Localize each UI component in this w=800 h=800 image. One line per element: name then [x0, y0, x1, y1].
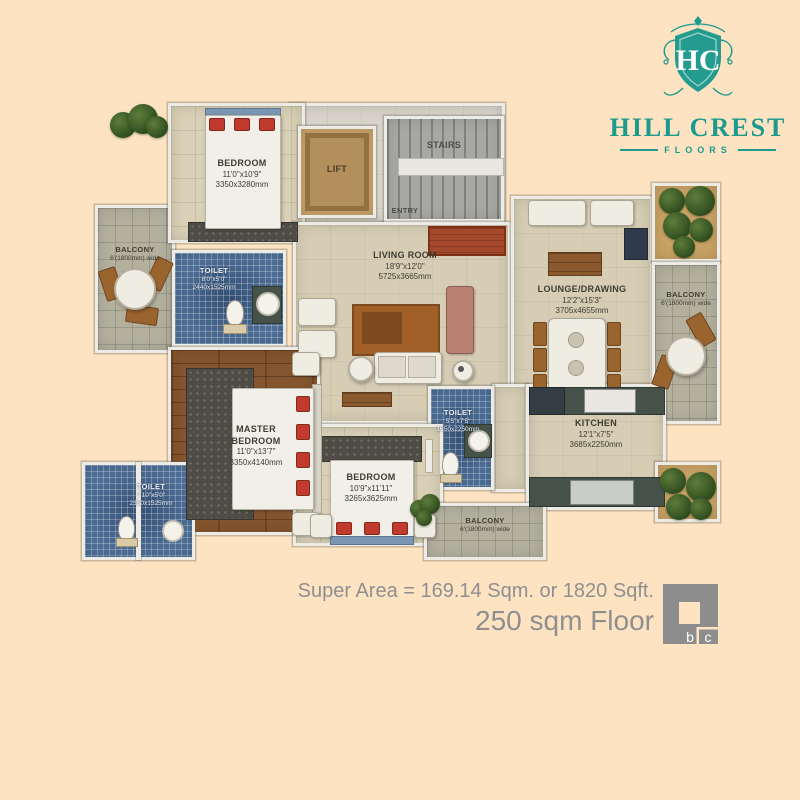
- toilet-top-basin: [256, 292, 280, 316]
- pillow: [336, 522, 352, 535]
- pillow: [296, 396, 310, 412]
- plants-right-top: [655, 186, 717, 260]
- kitchen-stove: [584, 389, 636, 413]
- toilet-bottom-basin: [162, 520, 184, 542]
- lounge-tv-cabinet: [548, 252, 602, 276]
- pillow: [234, 118, 250, 131]
- dining-chair: [607, 348, 621, 372]
- brand-subtitle: FLOORS: [600, 145, 796, 155]
- pillow: [296, 452, 310, 468]
- pillow: [296, 480, 310, 496]
- bedroom-bottom-side-table: [310, 514, 332, 538]
- label-toilet-mid: TOILET 5'5"x7'5" 1650x2250mm: [428, 408, 488, 435]
- label-lift: LIFT: [298, 164, 376, 176]
- bc-logo-icon: b c: [663, 584, 720, 646]
- corridor-kitchen: [492, 384, 528, 492]
- pillow: [259, 118, 275, 131]
- dining-chair: [533, 348, 547, 372]
- floor-size-text: 250 sqm Floor: [298, 605, 654, 637]
- label-toilet-top: TOILET 8'0"x5'0" 2440x1525mm: [176, 266, 252, 293]
- balcony-left-table: [114, 268, 156, 310]
- label-living: LIVING ROOM 18'9"x12'0" 5725x3665mm: [340, 250, 470, 282]
- toilet-bottom-wc-tank: [116, 538, 138, 547]
- dining-bowl: [568, 360, 584, 376]
- label-master: MASTER BEDROOM 11'0"x13'7" 3350x4140mm: [218, 424, 294, 468]
- living-side-table: [348, 356, 374, 382]
- sofa-cushion: [378, 356, 406, 378]
- bc-letter-b: b: [686, 629, 694, 645]
- lounge-sofa: [528, 200, 586, 226]
- lounge-dark-unit: [624, 228, 648, 260]
- kitchen-fridge: [529, 387, 565, 415]
- toilet-top-wc: [226, 300, 244, 326]
- pillow: [392, 522, 408, 535]
- pillow: [209, 118, 225, 131]
- plant-balcony-bottom: [410, 494, 440, 530]
- bedroom-bottom-headboard: [330, 536, 414, 545]
- label-bedroom-top: BEDROOM 11'0"x10'9" 3350x3280mm: [205, 158, 279, 190]
- toilet-mid-door-gap: [426, 440, 432, 472]
- living-tv-cabinet: [342, 392, 392, 407]
- hc-shield-icon: HC: [650, 14, 746, 106]
- label-balcony-bottom: BALCONY 6'(1800mm) wide: [428, 516, 542, 534]
- label-bedroom-bottom: BEDROOM 10'9"x11'11" 3265x3625mm: [330, 472, 412, 504]
- label-balcony-left: BALCONY 6'(1800mm) wide: [95, 245, 175, 263]
- label-toilet-bottom: TOILET 7'10"x5'0" 2390x1525mm: [116, 482, 186, 509]
- pedestal-center: [458, 366, 464, 372]
- plants-right-bottom: [658, 466, 718, 522]
- pillow: [296, 424, 310, 440]
- subtitle-rule-left: [620, 149, 658, 151]
- kitchen-sink: [570, 480, 634, 505]
- label-balcony-right: BALCONY 6'(1800mm) wide: [650, 290, 722, 308]
- subtitle-rule-right: [738, 149, 776, 151]
- floorplan-canvas: BEDROOM 11'0"x10'9" 3350x3280mm LIFT STA…: [0, 0, 800, 800]
- area-summary: Super Area = 169.14 Sqm. or 1820 Sqft. 2…: [298, 580, 654, 637]
- lounge-loveseat: [590, 200, 634, 226]
- balcony-right-table: [666, 336, 706, 376]
- toilet-top-wc-tank: [223, 324, 247, 334]
- bc-letter-c: c: [705, 629, 712, 645]
- dining-chair: [533, 322, 547, 346]
- dining-bowl: [568, 332, 584, 348]
- super-area-text: Super Area = 169.14 Sqm. or 1820 Sqft.: [298, 580, 654, 603]
- sofa-cushion: [408, 356, 436, 378]
- pillow: [364, 522, 380, 535]
- toilet-mid-wc-tank: [440, 474, 462, 483]
- label-lounge: LOUNGE/DRAWING 12'2"x15'3" 3705x4655mm: [516, 284, 648, 316]
- plants-top-left: [110, 104, 170, 144]
- bedroom-bottom-rug: [308, 436, 422, 462]
- label-stairs: STAIRS: [384, 140, 504, 152]
- living-coffee-table: [362, 312, 402, 344]
- dining-table: [548, 318, 606, 394]
- dining-chair: [607, 322, 621, 346]
- label-entry: ENTRY: [380, 206, 430, 216]
- living-armchair: [298, 298, 336, 326]
- hc-monogram: HC: [676, 44, 721, 77]
- label-kitchen: KITCHEN 12'1"x7'5" 3685x2250mm: [534, 418, 658, 450]
- master-side-table: [292, 352, 320, 376]
- living-chaise: [446, 286, 474, 354]
- bc-logo: b c: [663, 584, 720, 651]
- stairs-landing: [398, 158, 504, 176]
- brand-logo: HC HILL CREST FLOORS: [600, 14, 796, 155]
- brand-name: HILL CREST: [600, 113, 796, 143]
